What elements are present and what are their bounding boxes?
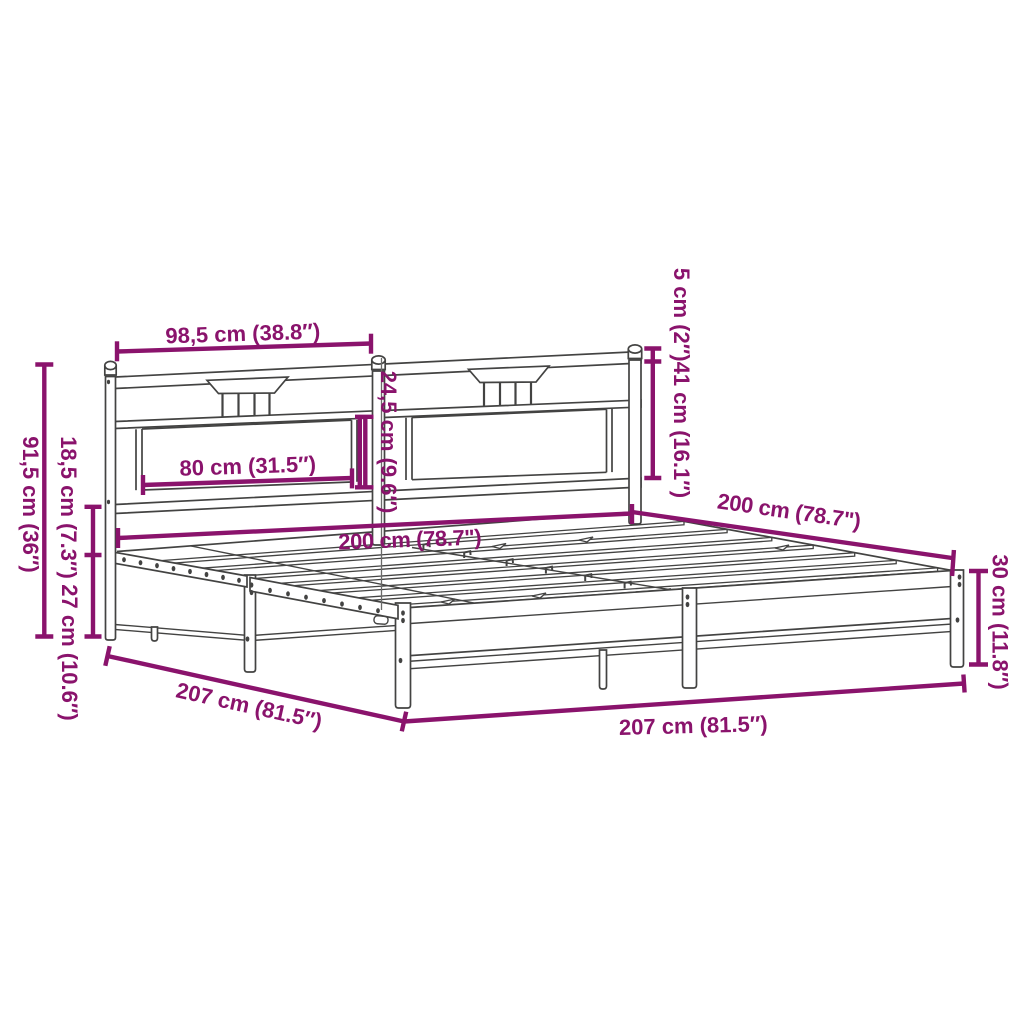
svg-text:24,5 cm (9.6″): 24,5 cm (9.6″): [376, 371, 401, 514]
svg-text:18,5 cm (7.3″): 18,5 cm (7.3″): [56, 436, 81, 579]
svg-text:5 cm (2″)41 cm (16.1″): 5 cm (2″)41 cm (16.1″): [669, 268, 694, 498]
svg-text:207 cm (81.5″): 207 cm (81.5″): [619, 711, 768, 740]
svg-text:30 cm (11.8″): 30 cm (11.8″): [988, 554, 1013, 689]
svg-text:91,5 cm (36″): 91,5 cm (36″): [18, 436, 43, 573]
svg-text:200 cm (78.7"): 200 cm (78.7"): [338, 525, 482, 555]
svg-text:27 cm (10.6″): 27 cm (10.6″): [57, 584, 82, 721]
svg-text:98,5 cm (38.8″): 98,5 cm (38.8″): [165, 319, 321, 349]
svg-text:80 cm (31.5″): 80 cm (31.5″): [179, 451, 316, 481]
